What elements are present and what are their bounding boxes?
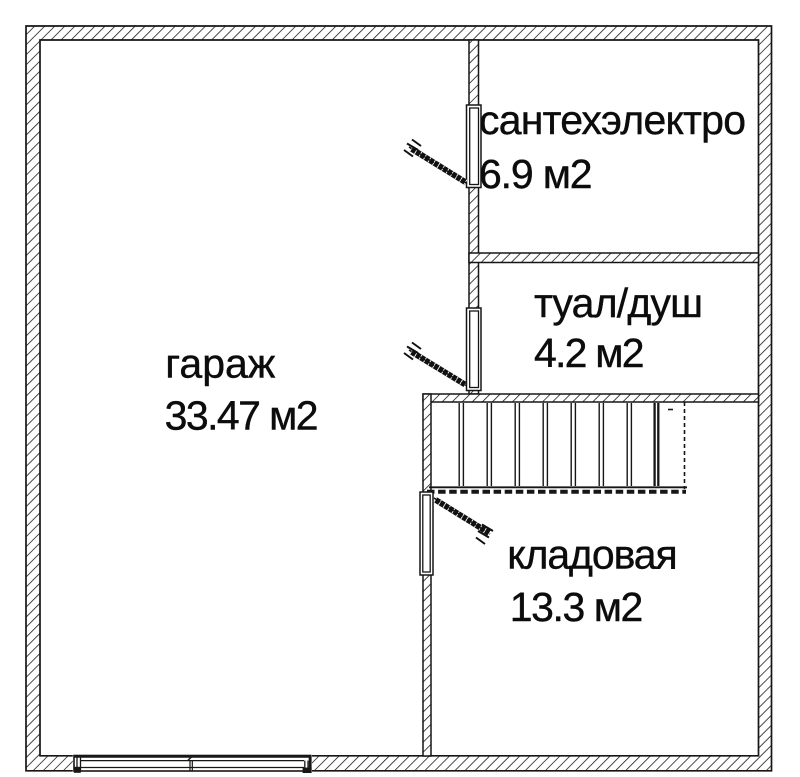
svg-text:кладовая: кладовая	[507, 532, 678, 578]
svg-text:туал/душ: туал/душ	[534, 280, 703, 326]
svg-text:сантехэлектро: сантехэлектро	[479, 97, 746, 143]
svg-text:4.2 м2: 4.2 м2	[534, 330, 645, 376]
svg-text:33.47 м2: 33.47 м2	[165, 393, 319, 439]
svg-text:гараж: гараж	[165, 341, 276, 387]
svg-text:13.3 м2: 13.3 м2	[510, 584, 644, 630]
svg-text:6.9 м2: 6.9 м2	[479, 151, 593, 197]
